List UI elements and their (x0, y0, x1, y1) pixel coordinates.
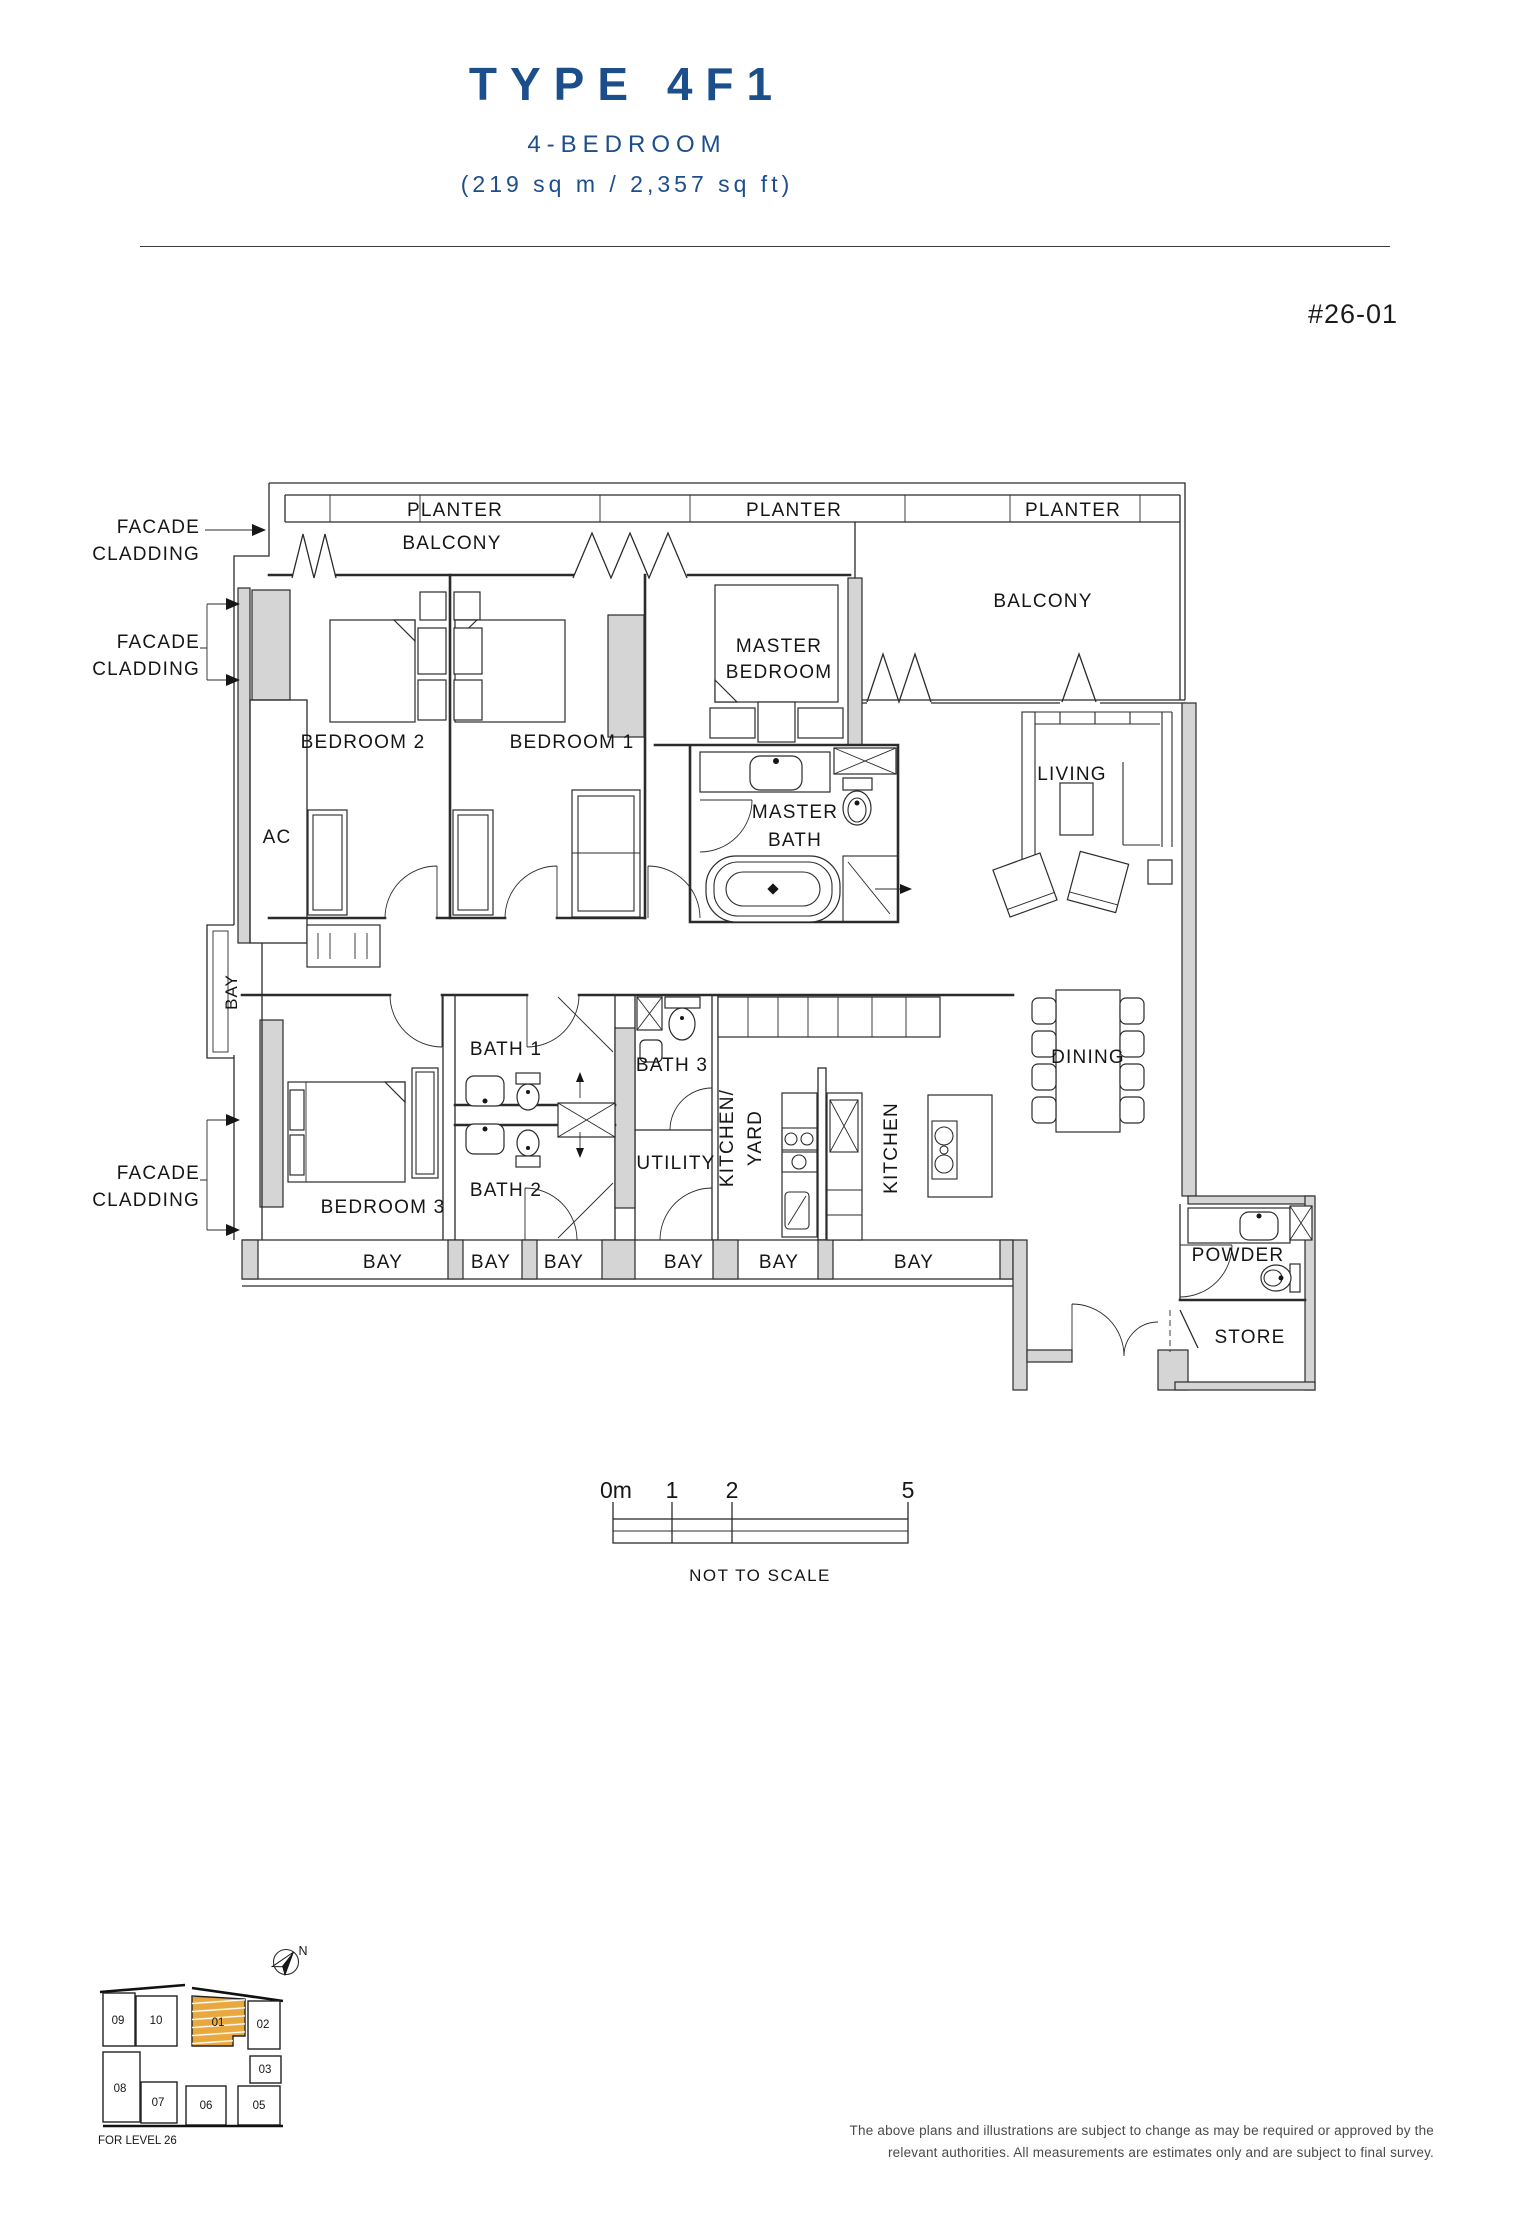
label-facade-cladding-2b: CLADDING (92, 659, 200, 680)
label-master-bath: MASTER (752, 802, 838, 823)
label-bath-2: BATH 2 (470, 1180, 542, 1201)
key-plan-unit-09: 09 (112, 2015, 125, 2027)
disclaimer-text: The above plans and illustrations are su… (850, 2120, 1434, 2164)
scale-tick-2: 2 (726, 1477, 739, 1503)
label-facade-cladding-3b: CLADDING (92, 1190, 200, 1211)
key-plan-unit-10: 10 (150, 2015, 163, 2027)
label-utility: UTILITY (636, 1153, 715, 1174)
label-bay-1: BAY (363, 1252, 403, 1273)
label-facade-cladding-1: FACADE (117, 517, 200, 538)
label-bedroom-1: BEDROOM 1 (510, 732, 635, 753)
label-master-bedroom-2: BEDROOM (726, 662, 833, 683)
label-balcony-right: BALCONY (993, 591, 1092, 612)
label-bay-2: BAY (471, 1252, 511, 1273)
label-kitchen-yard-2: YARD (745, 1110, 766, 1166)
scale-tick-0m: 0m (600, 1477, 632, 1503)
label-dining: DINING (1051, 1047, 1125, 1068)
label-balcony-left: BALCONY (402, 533, 501, 554)
label-master-bedroom: MASTER (736, 636, 822, 657)
key-plan-unit-05: 05 (253, 2100, 266, 2112)
floorplan-page: { "header": { "title": "TYPE 4F1", "subt… (0, 0, 1536, 2233)
label-bay-5: BAY (759, 1252, 799, 1273)
label-bedroom-2: BEDROOM 2 (301, 732, 426, 753)
label-powder: POWDER (1192, 1245, 1285, 1266)
scale-tick-1: 1 (666, 1477, 679, 1503)
label-bay-4: BAY (664, 1252, 704, 1273)
compass-icon: N (272, 1944, 307, 1976)
floor-plan-drawing: PLANTER PLANTER PLANTER BALCONY BALCONY … (0, 0, 1536, 2233)
label-master-bath-2: BATH (768, 830, 822, 851)
furniture (288, 585, 1312, 1292)
label-bay-3: BAY (544, 1252, 584, 1273)
label-bath-3: BATH 3 (636, 1055, 708, 1076)
scale-tick-5: 5 (902, 1477, 915, 1503)
key-plan-level-note: FOR LEVEL 26 (98, 2135, 177, 2147)
key-plan-unit-03: 03 (259, 2064, 272, 2076)
label-bedroom-3: BEDROOM 3 (321, 1197, 446, 1218)
label-kitchen-yard: KITCHEN/ (717, 1089, 738, 1187)
label-planter-3: PLANTER (1025, 500, 1121, 521)
disclaimer-line-2: relevant authorities. All measurements a… (850, 2142, 1434, 2164)
label-kitchen: KITCHEN (881, 1102, 902, 1194)
label-planter-2: PLANTER (746, 500, 842, 521)
label-living: LIVING (1037, 764, 1107, 785)
label-bay-6: BAY (894, 1252, 934, 1273)
compass-north-label: N (298, 1944, 307, 1958)
key-plan-unit-01: 01 (212, 2017, 225, 2029)
label-facade-cladding-3: FACADE (117, 1163, 200, 1184)
label-store: STORE (1214, 1327, 1285, 1348)
key-plan-unit-08: 08 (114, 2083, 127, 2095)
label-bay-side: BAY (222, 974, 241, 1010)
not-to-scale-note: NOT TO SCALE (689, 1566, 831, 1585)
key-plan-unit-07: 07 (152, 2097, 165, 2109)
label-ac: AC (263, 827, 292, 848)
key-plan: 09 10 01 02 03 08 07 06 05 FOR LEVEL 26 … (98, 1944, 308, 2147)
key-plan-unit-02: 02 (257, 2019, 270, 2031)
label-planter-1: PLANTER (407, 500, 503, 521)
label-bath-1: BATH 1 (470, 1039, 542, 1060)
scale-bar: 0m 1 2 5 NOT TO SCALE (600, 1477, 914, 1585)
label-facade-cladding-1b: CLADDING (92, 544, 200, 565)
disclaimer-line-1: The above plans and illustrations are su… (850, 2120, 1434, 2142)
key-plan-unit-06: 06 (200, 2100, 213, 2112)
label-facade-cladding-2: FACADE (117, 632, 200, 653)
